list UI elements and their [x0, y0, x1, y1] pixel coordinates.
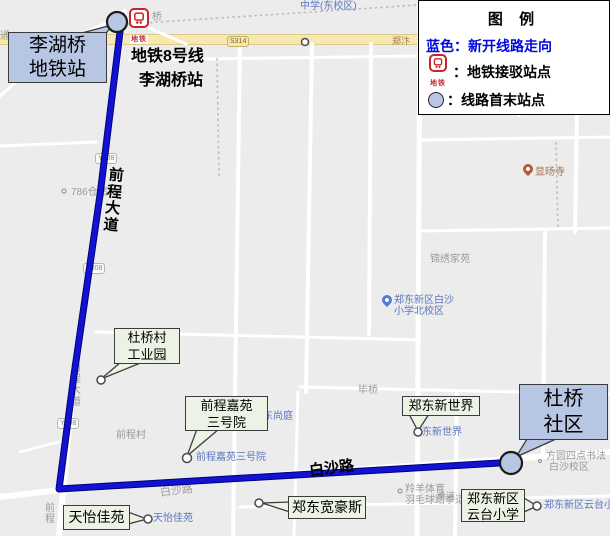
legend-terminal-row-label: ：线路首末站点 [447, 90, 545, 110]
tianyi-jiayuan-callout: 天怡佳苑 [63, 505, 130, 530]
legend-metro-logo-icon [429, 54, 447, 72]
yuntai-poi-marker [533, 502, 541, 510]
yuntai-callout-line2: 云台小学 [462, 507, 524, 523]
xinshijie-callout: 郑东新世界 [402, 396, 480, 416]
lingyang-dot-marker [398, 489, 402, 493]
legend-blue-route-label: 蓝色：新开线路走向 [426, 36, 609, 56]
kuanhaosi-callout: 郑东宽豪斯 [288, 496, 366, 519]
duqiaocun-industrial-callout: 杜桥村 工业园 [114, 328, 180, 364]
legend-metro-tag-label: 地铁 [429, 79, 447, 88]
station-terminal-marker [107, 12, 127, 32]
metro-station-icon: 地铁 [127, 8, 151, 46]
lihuqiao-callout-line2: 地铁站 [9, 58, 106, 82]
xinshijie-poi-marker [414, 428, 422, 436]
station-annotation-line1: 地铁8号线 [131, 42, 204, 66]
duqiaocun-callout-line1: 杜桥村 [115, 330, 179, 347]
route-terminal-marker [500, 452, 522, 474]
legend-terminal-icon [428, 92, 444, 108]
xinshijie-callout-label: 郑东新世界 [408, 398, 473, 413]
metro-logo-icon [129, 8, 149, 28]
duqiao-callout-line1: 杜桥 [520, 386, 607, 412]
kuanhaosi-poi-marker [255, 499, 263, 507]
fangyuan-dot-marker [539, 460, 542, 463]
duqiao-callout-line2: 社区 [520, 412, 607, 438]
qiancheng-callout-line2: 三号院 [186, 415, 267, 432]
lihuqiao-callout-line1: 李湖桥 [9, 34, 106, 58]
kuanhaosi-callout-tail [262, 502, 290, 512]
legend-title: 图 例 [419, 8, 609, 29]
kuanhaosi-callout-label: 郑东宽豪斯 [292, 499, 362, 515]
tianyi-poi-marker [144, 515, 152, 523]
qiancheng-poi-marker [183, 454, 192, 463]
station-annotation: 地铁8号线 李湖桥站 [131, 42, 204, 90]
duqiaocun-callout-line2: 工业园 [115, 347, 179, 364]
qiancheng-callout-line1: 前程嘉苑 [186, 398, 267, 415]
lihuqiao-station-callout: 李湖桥 地铁站 [8, 32, 107, 83]
duqiao-callout-tail [516, 439, 556, 457]
duqiaocun-callout-tail [101, 362, 143, 379]
yuntai-callout-line1: 郑东新区 [462, 491, 524, 507]
legend-metro-icon: 地铁 [426, 54, 450, 90]
duqiao-community-callout: 杜桥 社区 [519, 384, 608, 440]
legend-metro-row-label: ：地铁接驳站点 [453, 62, 551, 82]
tianyi-callout-label: 天怡佳苑 [69, 509, 125, 525]
legend-panel: 图 例 蓝色：新开线路走向 地铁 ：地铁接驳站点 ：线路首末站点 [418, 0, 610, 115]
warehouse-dot-marker [62, 189, 66, 193]
station-annotation-line2: 李湖桥站 [139, 66, 204, 90]
road-poi-marker [302, 39, 309, 46]
duqiaocun-poi-marker [97, 376, 105, 384]
qiancheng-callout-tail [187, 429, 219, 456]
qiancheng-jiayuan-callout: 前程嘉苑 三号院 [185, 396, 268, 431]
yuntai-school-callout: 郑东新区 云台小学 [461, 489, 525, 522]
map-canvas: 中学(东校区) 郑汴 桥 786仓储 显旸寺 锦绣家苑 郑东新区白沙 小学北校区… [0, 0, 610, 536]
